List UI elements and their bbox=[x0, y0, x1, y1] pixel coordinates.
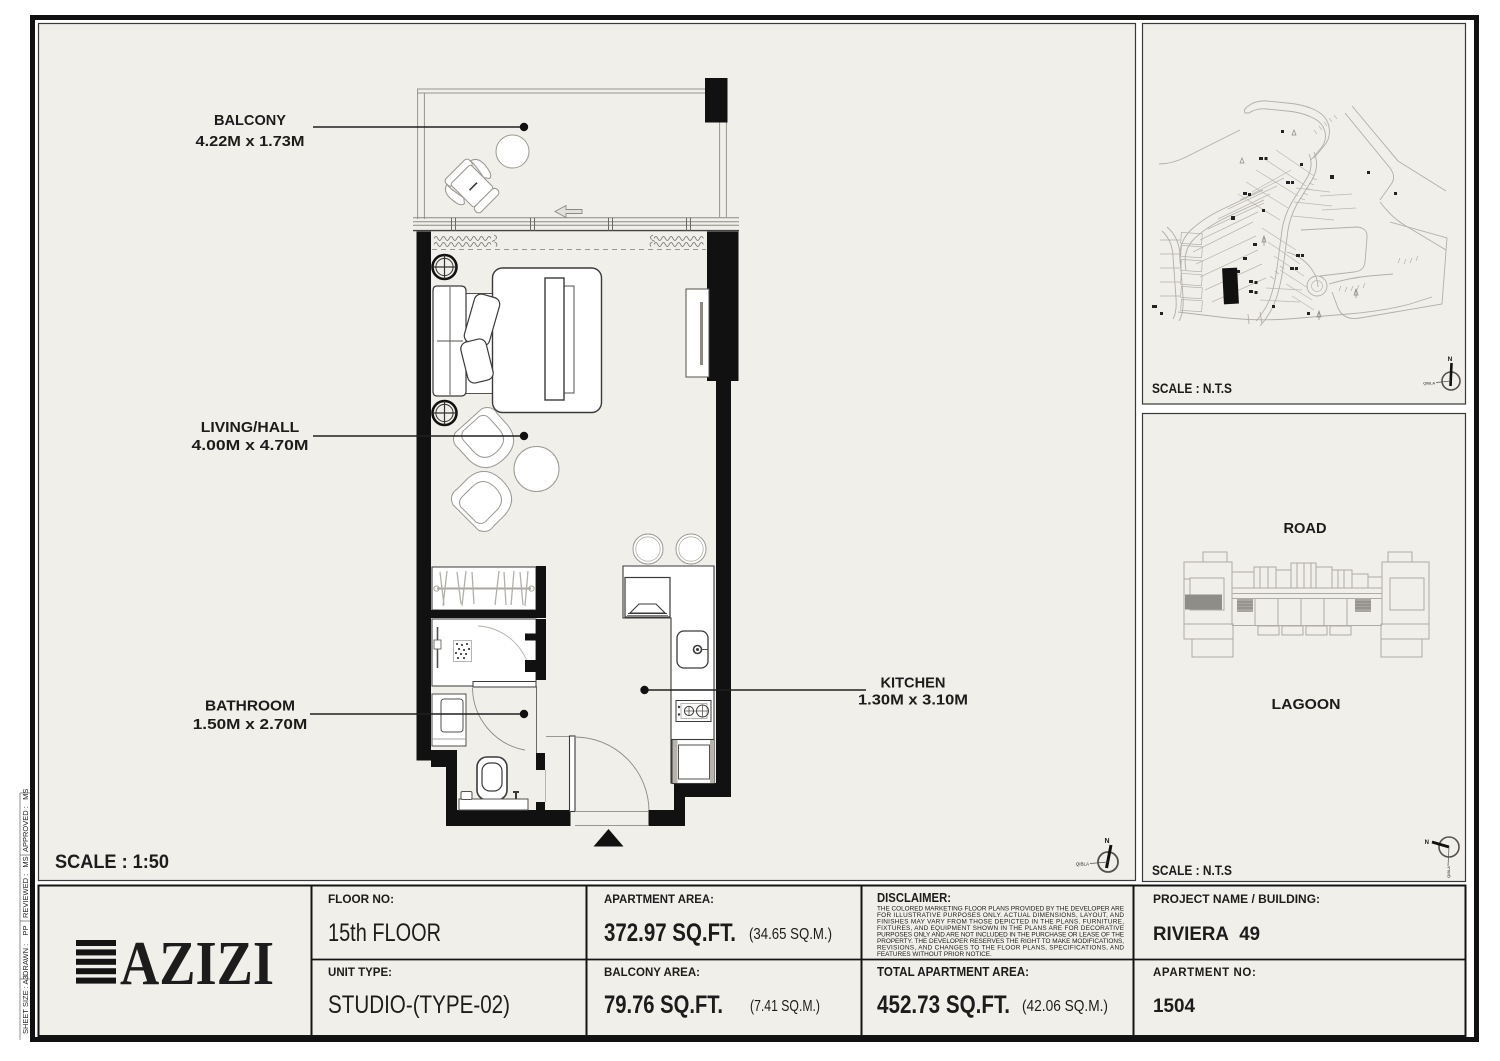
svg-text:(42.06 SQ.M.): (42.06 SQ.M.) bbox=[1022, 998, 1108, 1015]
svg-text:452.73 SQ.FT.: 452.73 SQ.FT. bbox=[877, 991, 1010, 1019]
svg-text:4.22M x 1.73M: 4.22M x 1.73M bbox=[196, 133, 305, 150]
svg-text:ROAD: ROAD bbox=[1284, 521, 1327, 537]
svg-text:APARTMENT AREA:: APARTMENT AREA: bbox=[604, 894, 714, 906]
svg-text:BALCONY AREA:: BALCONY AREA: bbox=[604, 967, 700, 979]
svg-text:QIBLA: QIBLA bbox=[1423, 381, 1435, 386]
svg-text:79.76 SQ.FT.: 79.76 SQ.FT. bbox=[604, 991, 723, 1019]
svg-text:RIVIERA 49: RIVIERA 49 bbox=[1153, 924, 1260, 945]
svg-text:AZIZI: AZIZI bbox=[120, 930, 274, 998]
svg-text:DISCLAIMER:: DISCLAIMER: bbox=[877, 891, 951, 905]
svg-text:SCALE : 1:50: SCALE : 1:50 bbox=[55, 852, 169, 873]
svg-text:N: N bbox=[1104, 838, 1109, 845]
svg-text:STUDIO-(TYPE-02): STUDIO-(TYPE-02) bbox=[328, 991, 510, 1019]
svg-text:BATHROOM: BATHROOM bbox=[205, 698, 295, 715]
svg-text:4.00M x 4.70M: 4.00M x 4.70M bbox=[192, 437, 309, 454]
svg-text:FEATURES WITHOUT PRIOR NOTICE.: FEATURES WITHOUT PRIOR NOTICE. bbox=[877, 951, 992, 958]
svg-text:APPROVED : MS: APPROVED : MS bbox=[21, 789, 30, 852]
svg-text:LAGOON: LAGOON bbox=[1272, 697, 1341, 713]
svg-text:FLOOR NO:: FLOOR NO: bbox=[328, 894, 394, 906]
svg-text:REVIEWED : MS: REVIEWED : MS bbox=[21, 856, 30, 918]
svg-text:SCALE : N.T.S: SCALE : N.T.S bbox=[1152, 863, 1232, 878]
svg-text:BALCONY: BALCONY bbox=[214, 112, 286, 129]
svg-text:SHEET SIZE : A3: SHEET SIZE : A3 bbox=[21, 975, 30, 1034]
svg-text:N: N bbox=[1448, 356, 1453, 363]
svg-text:SCALE : N.T.S: SCALE : N.T.S bbox=[1152, 381, 1232, 396]
svg-text:DRAWN : PP: DRAWN : PP bbox=[21, 925, 30, 976]
svg-text:PROJECT NAME / BUILDING:: PROJECT NAME / BUILDING: bbox=[1153, 894, 1320, 906]
svg-text:372.97 SQ.FT.: 372.97 SQ.FT. bbox=[604, 919, 736, 947]
svg-text:1504: 1504 bbox=[1153, 996, 1195, 1017]
svg-text:UNIT TYPE:: UNIT TYPE: bbox=[328, 967, 392, 979]
svg-text:1.30M x 3.10M: 1.30M x 3.10M bbox=[858, 692, 968, 709]
svg-text:N: N bbox=[1425, 840, 1429, 846]
svg-text:(34.65 SQ.M.): (34.65 SQ.M.) bbox=[749, 926, 832, 943]
svg-text:QIBLA: QIBLA bbox=[1446, 866, 1451, 878]
svg-text:QIBLA: QIBLA bbox=[1076, 862, 1089, 867]
svg-text:15th FLOOR: 15th FLOOR bbox=[328, 919, 441, 947]
svg-text:LIVING/HALL: LIVING/HALL bbox=[201, 419, 300, 436]
svg-text:APARTMENT NO:: APARTMENT NO: bbox=[1153, 967, 1256, 979]
svg-text:1.50M x 2.70M: 1.50M x 2.70M bbox=[193, 716, 308, 733]
svg-text:KITCHEN: KITCHEN bbox=[881, 675, 946, 692]
svg-text:TOTAL APARTMENT AREA:: TOTAL APARTMENT AREA: bbox=[877, 964, 1029, 979]
svg-text:(7.41 SQ.M.): (7.41 SQ.M.) bbox=[750, 998, 820, 1015]
